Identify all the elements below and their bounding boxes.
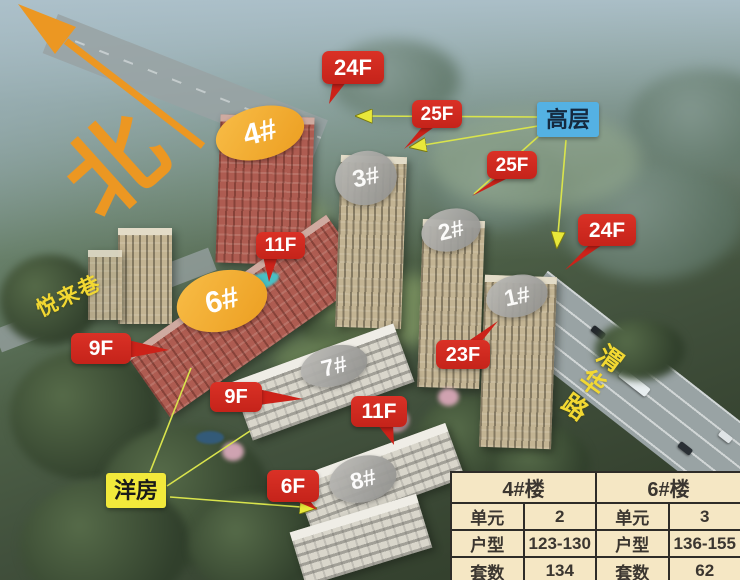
callout-11f-building8: 11F	[351, 396, 407, 427]
callout-24f-building4: 24F	[322, 51, 384, 84]
table-cell-value: 134	[524, 557, 597, 580]
building-left-tower	[118, 228, 172, 324]
callout-25f-building2: 25F	[487, 151, 537, 179]
table-cell-value: 62	[669, 557, 740, 580]
callout-11f-building6: 11F	[256, 232, 305, 259]
table-header-building6: 6#楼	[596, 472, 740, 503]
table-header-building4: 4#楼	[451, 472, 596, 503]
highrise-tag: 高层	[537, 102, 599, 137]
table-cell-label: 套数	[451, 557, 524, 580]
car	[718, 430, 733, 444]
blossom-tree	[438, 388, 459, 406]
flats-tag: 洋房	[106, 473, 166, 508]
table-cell-label: 单元	[451, 503, 524, 530]
pond	[196, 431, 224, 444]
callout-9f-left: 9F	[71, 333, 131, 364]
site-plan-canvas: 北 4# 6# 3# 2# 1# 7# 8# 24F 25F 25F 24F 2…	[0, 0, 740, 580]
table-cell-value: 3	[669, 503, 740, 530]
table-cell-label: 户型	[451, 530, 524, 557]
callout-6f: 6F	[267, 470, 319, 502]
table-cell-value: 136-155	[669, 530, 740, 557]
blossom-tree	[222, 442, 244, 461]
callout-24f-building1: 24F	[578, 214, 636, 246]
table-cell-label: 套数	[596, 557, 669, 580]
callout-25f-building3: 25F	[412, 100, 462, 128]
callout-23f-building1: 23F	[436, 340, 490, 369]
table-cell-value: 123-130	[524, 530, 597, 557]
table-cell-value: 2	[524, 503, 597, 530]
callout-9f-building7: 9F	[210, 382, 262, 412]
car	[677, 441, 693, 456]
table-cell-label: 户型	[596, 530, 669, 557]
table-cell-label: 单元	[596, 503, 669, 530]
unit-info-table: 4#楼 6#楼 单元 2 单元 3 户型 123-130 户型 136-155 …	[450, 471, 740, 580]
